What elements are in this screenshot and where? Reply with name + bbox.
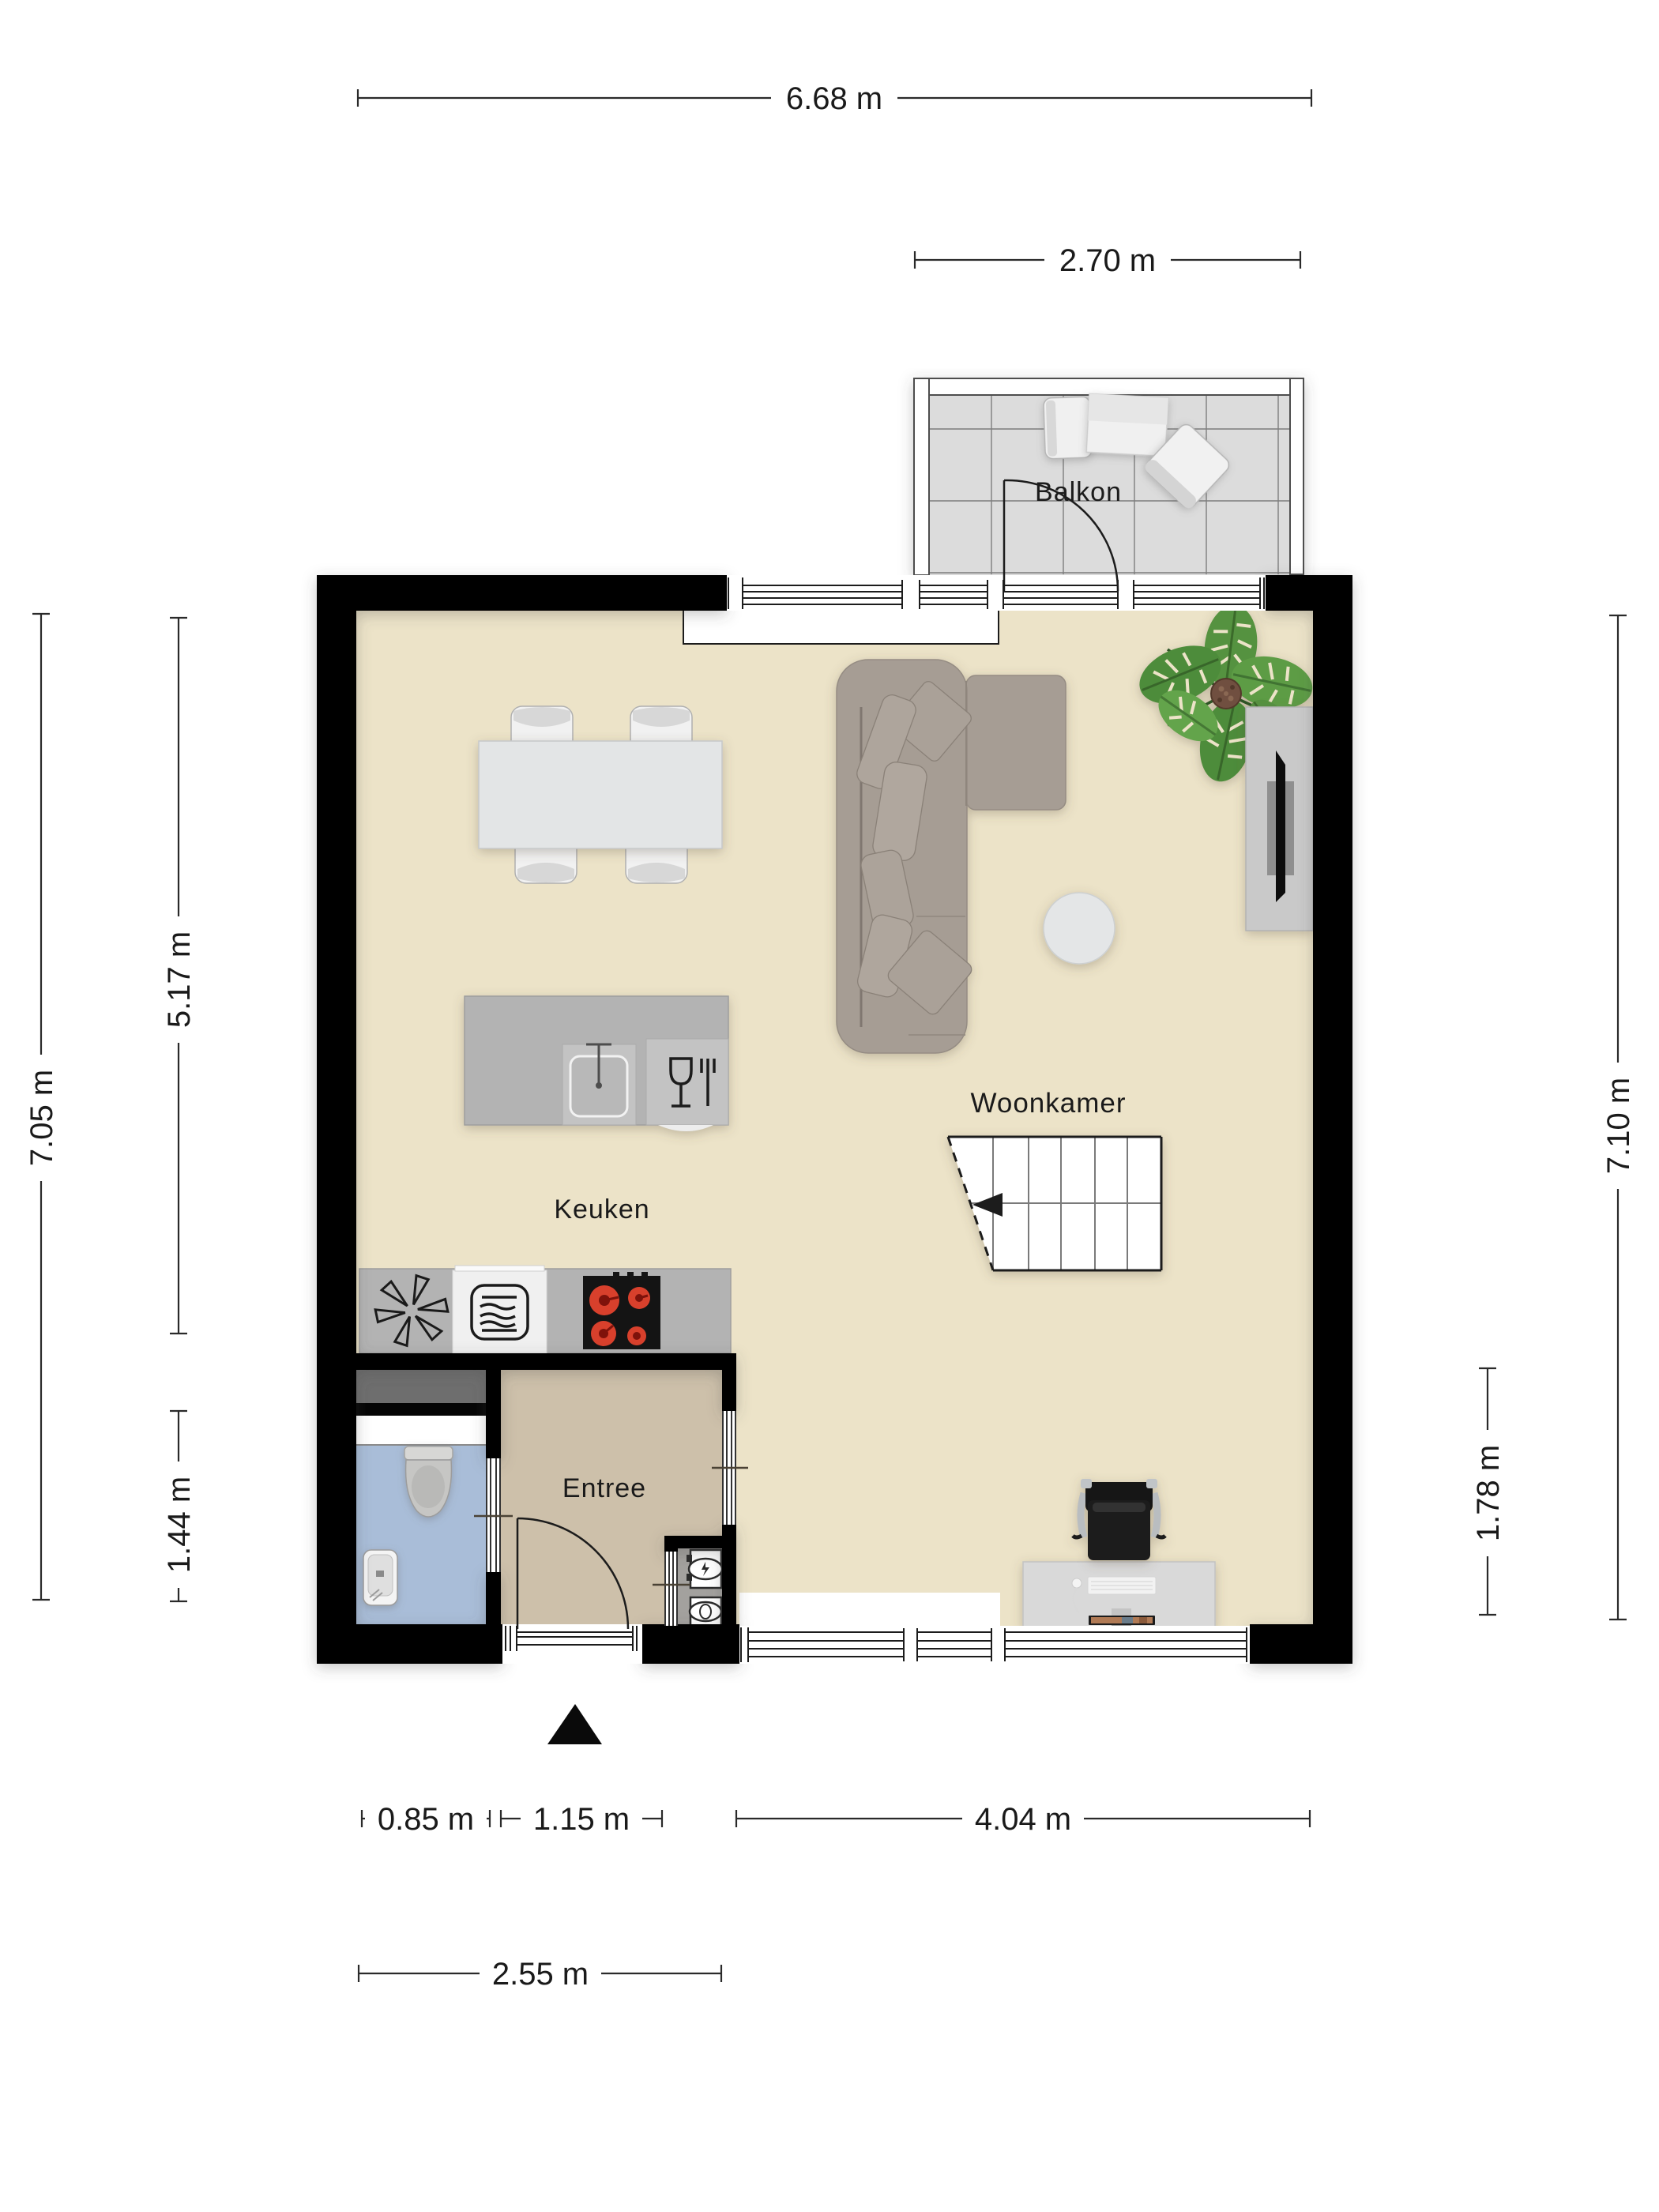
svg-text:0.85 m: 0.85 m bbox=[378, 1802, 474, 1837]
svg-text:6.68 m: 6.68 m bbox=[786, 81, 882, 116]
svg-text:5.17 m: 5.17 m bbox=[162, 931, 197, 1028]
svg-text:7.05 m: 7.05 m bbox=[24, 1070, 59, 1166]
svg-text:4.04 m: 4.04 m bbox=[975, 1802, 1071, 1837]
svg-text:2.70 m: 2.70 m bbox=[1059, 243, 1156, 278]
svg-text:Keuken: Keuken bbox=[554, 1194, 649, 1224]
svg-text:Balkon: Balkon bbox=[1035, 477, 1122, 507]
svg-text:2.55 m: 2.55 m bbox=[492, 1957, 589, 1992]
svg-text:Woonkamer: Woonkamer bbox=[970, 1088, 1126, 1119]
svg-text:1.78 m: 1.78 m bbox=[1471, 1445, 1506, 1541]
svg-text:1.15 m: 1.15 m bbox=[533, 1802, 630, 1837]
svg-text:7.10 m: 7.10 m bbox=[1601, 1078, 1636, 1174]
svg-text:Entree: Entree bbox=[562, 1473, 646, 1503]
svg-text:1.44 m: 1.44 m bbox=[162, 1477, 197, 1573]
